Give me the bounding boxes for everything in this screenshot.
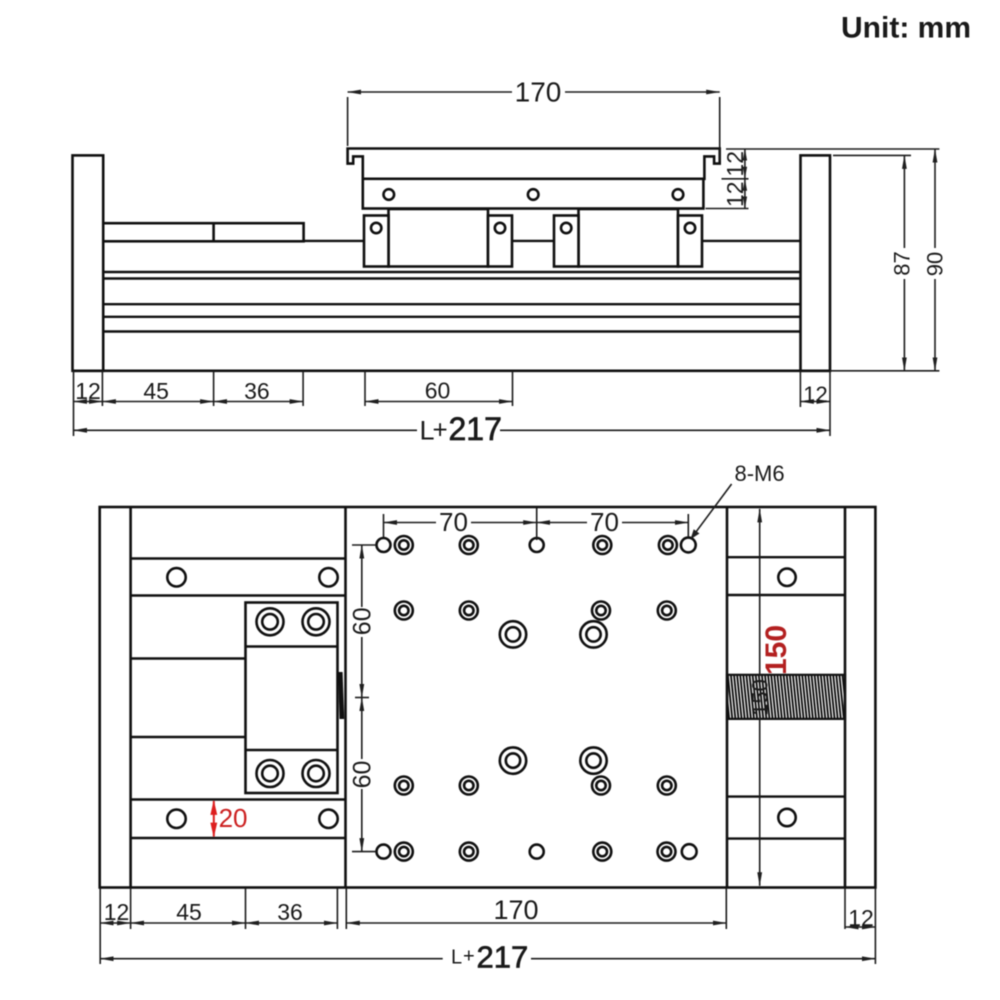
svg-text:45: 45: [143, 378, 169, 404]
svg-text:150: 150: [760, 625, 793, 675]
svg-text:12: 12: [848, 905, 874, 931]
svg-text:Unit: mm: Unit: mm: [841, 12, 971, 45]
svg-text:60: 60: [425, 378, 451, 404]
svg-text:170: 170: [515, 77, 562, 108]
svg-text:150: 150: [748, 679, 773, 716]
svg-text:12: 12: [803, 382, 827, 407]
svg-text:90: 90: [922, 252, 947, 276]
svg-text:217: 217: [449, 411, 502, 447]
svg-text:L: L: [451, 947, 462, 969]
svg-text:60: 60: [349, 761, 377, 789]
svg-text:12: 12: [75, 378, 101, 404]
svg-text:12: 12: [722, 181, 748, 207]
svg-text:36: 36: [277, 899, 303, 925]
svg-text:70: 70: [590, 507, 619, 537]
svg-text:217: 217: [477, 940, 529, 975]
svg-text:170: 170: [493, 895, 538, 925]
svg-text:12: 12: [722, 151, 748, 177]
svg-text:60: 60: [349, 607, 377, 635]
svg-text:36: 36: [244, 378, 270, 404]
svg-text:8-M6: 8-M6: [735, 461, 785, 486]
svg-text:70: 70: [439, 507, 468, 537]
svg-text:20: 20: [219, 803, 248, 833]
svg-text:87: 87: [890, 251, 915, 275]
svg-text:12: 12: [104, 899, 130, 925]
svg-text:45: 45: [176, 899, 202, 925]
svg-text:+: +: [433, 415, 448, 445]
svg-text:+: +: [463, 946, 475, 968]
